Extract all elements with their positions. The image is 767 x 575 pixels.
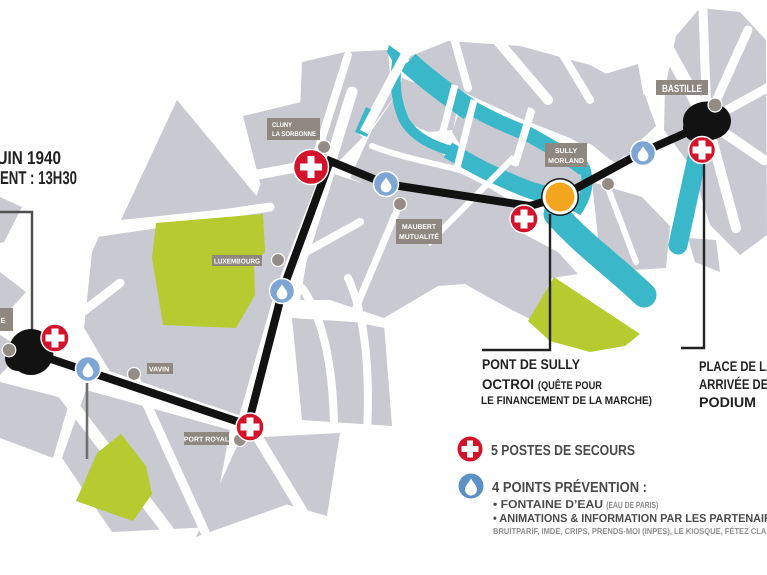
svg-text:LA SORBONNE: LA SORBONNE — [272, 131, 316, 138]
svg-text:BASTILLE: BASTILLE — [662, 83, 702, 95]
svg-text:MORLAND: MORLAND — [548, 158, 584, 165]
svg-text:PONT DE SULLY: PONT DE SULLY — [482, 356, 581, 372]
svg-text:ENT : 13H30: ENT : 13H30 — [0, 167, 77, 188]
svg-text:CLUNY: CLUNY — [272, 122, 292, 129]
svg-text:LUXEMBOURG: LUXEMBOURG — [214, 259, 260, 266]
svg-text:LE FINANCEMENT DE LA MARCHE): LE FINANCEMENT DE LA MARCHE) — [481, 395, 652, 407]
svg-text:E: E — [1, 316, 6, 325]
svg-text:• FONTAINE D’EAU (EAU DE PARIS: • FONTAINE D’EAU (EAU DE PARIS) — [493, 499, 658, 511]
svg-text:4 POINTS PRÉVENTION :: 4 POINTS PRÉVENTION : — [492, 479, 647, 496]
svg-text:PLACE DE LA BASTILLE: PLACE DE LA BASTILLE — [699, 358, 767, 374]
svg-text:BRUITPARIF, IMDE, CRIPS, PREND: BRUITPARIF, IMDE, CRIPS, PRENDS-MOI (INP… — [493, 526, 767, 536]
svg-text:MUTUALITÉ: MUTUALITÉ — [399, 232, 439, 241]
svg-text:5 POSTES DE SECOURS: 5 POSTES DE SECOURS — [491, 443, 635, 459]
svg-text:JUIN 1940: JUIN 1940 — [0, 147, 61, 168]
svg-text:VAVIN: VAVIN — [149, 367, 169, 374]
svg-text:ARRIVÉE DE LA MARCHE: ARRIVÉE DE LA MARCHE — [699, 376, 767, 392]
svg-text:MAUBERT: MAUBERT — [402, 224, 437, 231]
svg-text:• ANIMATIONS & INFORMATION PAR: • ANIMATIONS & INFORMATION PAR LES PARTE… — [493, 513, 767, 525]
svg-text:SULLY: SULLY — [555, 148, 578, 155]
svg-text:PODIUM: PODIUM — [699, 394, 756, 410]
svg-text:PORT ROYAL: PORT ROYAL — [184, 437, 230, 444]
